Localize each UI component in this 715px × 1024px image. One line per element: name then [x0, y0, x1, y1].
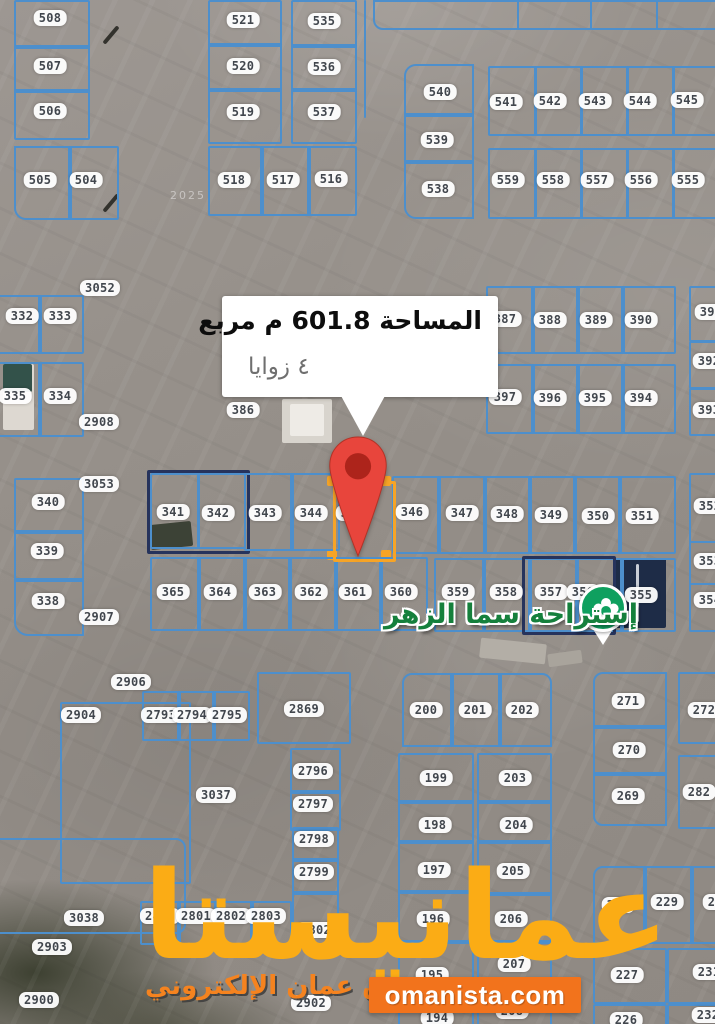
plot-label: 2900 — [19, 992, 59, 1008]
plot-label: 363 — [249, 584, 282, 600]
plot-label: 2904 — [61, 707, 101, 723]
plot-outline — [517, 0, 592, 30]
popup-area-text: المساحة 601.8 م مربع — [198, 306, 482, 335]
plot-label: 543 — [579, 93, 612, 109]
plot-outline — [373, 0, 519, 30]
plot-label: 388 — [534, 312, 567, 328]
plot-label: 389 — [580, 312, 613, 328]
plot-label: 542 — [534, 93, 567, 109]
plot-label: 352 — [694, 498, 715, 514]
plot-label: 199 — [420, 770, 453, 786]
plot-label: 200 — [410, 702, 443, 718]
plot-label: 335 — [0, 388, 31, 404]
plot-label: 3052 — [80, 280, 120, 296]
area-popup: المساحة 601.8 م مربع ٤ زوايا — [222, 296, 498, 397]
plot-label: 358 — [490, 584, 523, 600]
map-canvas[interactable]: 5085075065055045215205195355365375185175… — [0, 0, 715, 1024]
pin-inner-dot — [345, 453, 371, 479]
plot-label: 346 — [396, 504, 429, 520]
plot-label: 392 — [693, 353, 715, 369]
plot-label: 395 — [579, 390, 612, 406]
plot-label: 507 — [34, 58, 67, 74]
plot-label: 393 — [693, 402, 715, 418]
plot-label: 350 — [582, 508, 615, 524]
plot-label: 394 — [625, 390, 658, 406]
plot-label: 364 — [204, 584, 237, 600]
plot-label: 3053 — [79, 476, 119, 492]
terrain-patch — [290, 404, 324, 436]
plot-label: 333 — [44, 308, 77, 324]
plot-label: 3037 — [196, 787, 236, 803]
plot-label: 344 — [295, 505, 328, 521]
plot-label: 360 — [385, 584, 418, 600]
plot-label: 269 — [612, 788, 645, 804]
plot-label: 557 — [581, 172, 614, 188]
plot-label: 521 — [227, 12, 260, 28]
plot-label: 361 — [339, 584, 372, 600]
plot-label: 334 — [44, 388, 77, 404]
plot-label: 535 — [308, 13, 341, 29]
plot-label: 349 — [535, 507, 568, 523]
terrain-patch — [479, 638, 547, 665]
plot-label: 353 — [694, 553, 715, 569]
plot-outline — [656, 0, 715, 30]
plot-label: 359 — [442, 584, 475, 600]
plot-label: 357 — [535, 584, 568, 600]
plot-label: 558 — [537, 172, 570, 188]
plot-label: 2796 — [293, 763, 333, 779]
copyright-text: 2025 — [170, 189, 206, 202]
plot-label: 2903 — [32, 939, 72, 955]
plot-label: 272 — [688, 702, 715, 718]
plot-label: 203 — [499, 770, 532, 786]
plot-label: 347 — [446, 505, 479, 521]
plot-outline — [0, 295, 42, 354]
plot-label: 3038 — [64, 910, 104, 926]
plot-label: 362 — [295, 584, 328, 600]
plot-label: 539 — [421, 132, 454, 148]
selected-location-pin-icon[interactable] — [328, 436, 388, 557]
plot-label: 2906 — [111, 674, 151, 690]
plot-label: 506 — [34, 103, 67, 119]
plot-label: 201 — [459, 702, 492, 718]
plot-label: 390 — [625, 312, 658, 328]
plot-label: 519 — [227, 104, 260, 120]
plot-label: 504 — [70, 172, 103, 188]
plot-label: 2908 — [79, 414, 119, 430]
plot-label: 365 — [157, 584, 190, 600]
popup-corners-text: ٤ زوايا — [248, 354, 310, 380]
plot-label: 2907 — [79, 609, 119, 625]
plot-label: 271 — [612, 693, 645, 709]
terrain-patch — [547, 650, 582, 668]
website-badge: omanista.com — [369, 977, 581, 1013]
plot-label: 545 — [671, 92, 704, 108]
plot-label: 538 — [422, 181, 455, 197]
plot-label: 555 — [672, 172, 705, 188]
plot-label: 536 — [308, 59, 341, 75]
plot-label: 508 — [34, 10, 67, 26]
plot-outline — [364, 0, 366, 118]
plot-label: 340 — [32, 494, 65, 510]
plot-label: 230 — [703, 894, 715, 910]
plot-label: 2795 — [207, 707, 247, 723]
plot-label: 202 — [506, 702, 539, 718]
plot-label: 339 — [31, 543, 64, 559]
plot-label: 338 — [32, 593, 65, 609]
plot-label: 231 — [693, 964, 715, 980]
plot-outline — [590, 0, 658, 30]
plot-label: 2869 — [284, 701, 324, 717]
plot-label: 559 — [492, 172, 525, 188]
plot-label: 282 — [683, 784, 715, 800]
plot-label: 517 — [267, 172, 300, 188]
plot-outline — [38, 295, 84, 354]
plot-label: 226 — [610, 1012, 643, 1024]
plot-label: 332 — [6, 308, 39, 324]
plot-label: 537 — [308, 104, 341, 120]
plot-label: 544 — [624, 93, 657, 109]
popup-pointer — [340, 394, 386, 436]
plot-label: 270 — [613, 742, 646, 758]
plot-label: 342 — [202, 505, 235, 521]
plot-label: 556 — [625, 172, 658, 188]
plot-label: 354 — [694, 592, 715, 608]
resort-poi-label: إستراحة سما الزهر — [384, 599, 638, 630]
plot-label: 341 — [157, 504, 190, 520]
plot-label: 396 — [534, 390, 567, 406]
plot-label: 204 — [500, 817, 533, 833]
plot-label: 198 — [419, 817, 452, 833]
plot-label: 541 — [490, 94, 523, 110]
plot-label: 516 — [315, 171, 348, 187]
plot-label: 505 — [24, 172, 57, 188]
terrain-patch — [102, 25, 119, 44]
plot-label: 2797 — [293, 796, 333, 812]
plot-label: 391 — [695, 304, 715, 320]
plot-label: 540 — [424, 84, 457, 100]
website-badge-text: omanista.com — [385, 980, 566, 1011]
plot-label: 351 — [626, 508, 659, 524]
plot-label: 520 — [227, 58, 260, 74]
watermark-logo: عمانيستا — [143, 845, 669, 989]
plot-label: 343 — [249, 505, 282, 521]
plot-label: 348 — [491, 506, 524, 522]
plot-label: 386 — [227, 402, 260, 418]
plot-label: 518 — [218, 172, 251, 188]
plot-label: 232 — [692, 1007, 715, 1023]
